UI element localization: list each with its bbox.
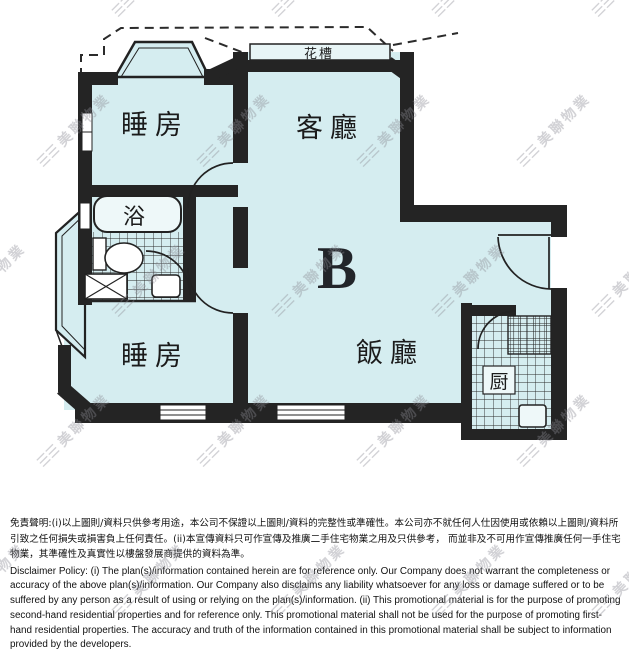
disclaimer-english: Disclaimer Policy: (i) The plan(s)/infor… [10, 565, 622, 653]
bathroom-sink [152, 275, 180, 297]
disclaimer-chinese: 免責聲明:(i)以上圖則/資料只供參考用途，本公司不保證以上圖則/資料的完整性或… [10, 516, 622, 563]
bottom-window-2 [277, 405, 345, 420]
floor-plan: 睡房 客廳 浴 睡房 飯廳 厨 花槽 B [0, 0, 629, 512]
kitchen-label: 厨 [489, 371, 508, 393]
bedroom-top-bay-window [115, 42, 209, 77]
kitchen [472, 316, 551, 429]
bedroom-bottom-label: 睡房 [121, 341, 189, 372]
dining-room-label: 飯廳 [356, 338, 424, 369]
living-room-label: 客廳 [296, 113, 364, 144]
flower-trough-label: 花槽 [304, 46, 334, 62]
bottom-window-1 [160, 405, 206, 420]
toilet-bowl [105, 243, 143, 273]
disclaimer: 免責聲明:(i)以上圖則/資料只供參考用途，本公司不保證以上圖則/資料的完整性或… [10, 516, 622, 653]
floor-plan-page: 睡房 客廳 浴 睡房 飯廳 厨 花槽 B ☰☰美聯物業☰☰美聯物業☰☰美聯物業☰… [0, 0, 629, 656]
unit-label: B [317, 235, 357, 301]
bath-label: 浴 [123, 205, 145, 230]
shower-box [85, 274, 127, 299]
kitchen-counter [508, 316, 551, 354]
bedroom-top-label: 睡房 [121, 110, 189, 141]
bedroom-top-wall-window [82, 113, 92, 151]
toilet-tank [93, 238, 106, 270]
bathroom-wall-window [80, 203, 90, 229]
kitchen-sink [519, 405, 546, 427]
